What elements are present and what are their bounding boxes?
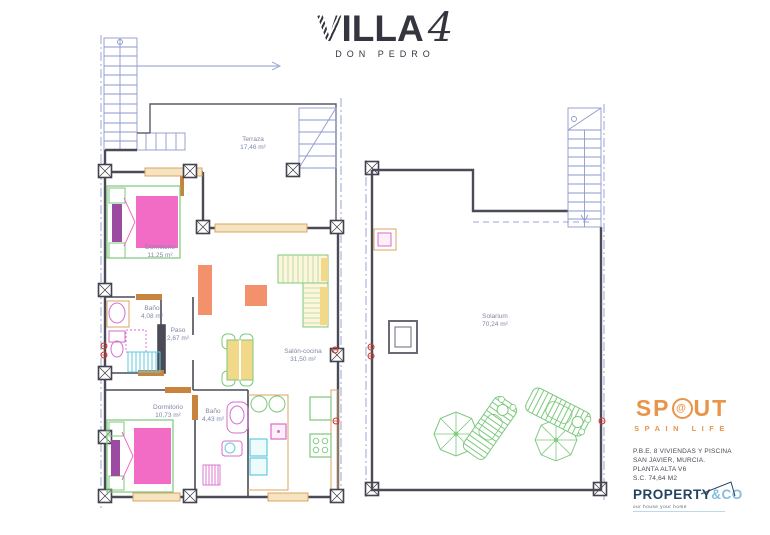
project-info-line: SAN JAVIER, MURCIA. (633, 456, 743, 465)
room-label-bano-2: Baño4,43 m² (202, 408, 224, 424)
spout-part1: SP (636, 397, 671, 420)
spout-part2: UT (694, 397, 729, 420)
bed-dormitorio-2 (107, 420, 173, 492)
villa-logo: VILLA4 (285, 8, 485, 48)
boundary-guides (101, 35, 604, 508)
villa-subtitle: DON PEDRO (285, 49, 485, 59)
room-label-salon-cocina: Salón-cocina31,50 m² (284, 348, 322, 364)
villa-logo-v: V (317, 8, 342, 49)
spout-o-swirl-icon: @ (672, 398, 693, 419)
dining-set (222, 334, 253, 386)
sheet-title: VILLA4 DON PEDRO (285, 8, 485, 59)
kitchen-fixtures (248, 395, 331, 490)
room-label-solarium: Solarium70,24 m² (482, 313, 508, 329)
villa-number: 4 (428, 5, 453, 51)
room-label-dormitorio-2: Dormitorio10,73 m² (153, 404, 183, 420)
roof-line-icon (699, 480, 739, 498)
spout-wordmark: SP@UT (631, 397, 733, 420)
salon-furniture (198, 255, 328, 386)
staircase-left (104, 38, 280, 150)
room-label-dormitorio-1: Dormitorio11,25 m² (145, 244, 175, 260)
propertyco-logo: PROPERTY&CO our house your home (633, 487, 733, 512)
chimney (389, 321, 417, 353)
project-info-line: PLANTA ALTA V6 (633, 465, 743, 474)
spout-tagline: SPAIN LIFE (631, 424, 733, 433)
staircase-solarium (568, 108, 601, 227)
propertyco-tagline: our house your home (633, 504, 725, 512)
project-info: P.B.E. 8 VIVIENDAS Y PISCINA SAN JAVIER,… (633, 447, 743, 483)
corner-sofa (278, 255, 328, 327)
project-info-line: P.B.E. 8 VIVIENDAS Y PISCINA (633, 447, 743, 456)
room-label-bano-1: Baño4,08 m² (141, 305, 163, 321)
room-label-paso: Paso2,67 m² (167, 327, 189, 343)
room-label-terraza: Terraza17,46 m² (240, 136, 266, 152)
spout-logo: SP@UT SPAIN LIFE (631, 397, 733, 433)
solarium-fixture (374, 229, 396, 250)
villa-logo-text: ILLA (342, 8, 424, 49)
staircase-terraza (299, 108, 336, 168)
sun-loungers (434, 386, 593, 462)
